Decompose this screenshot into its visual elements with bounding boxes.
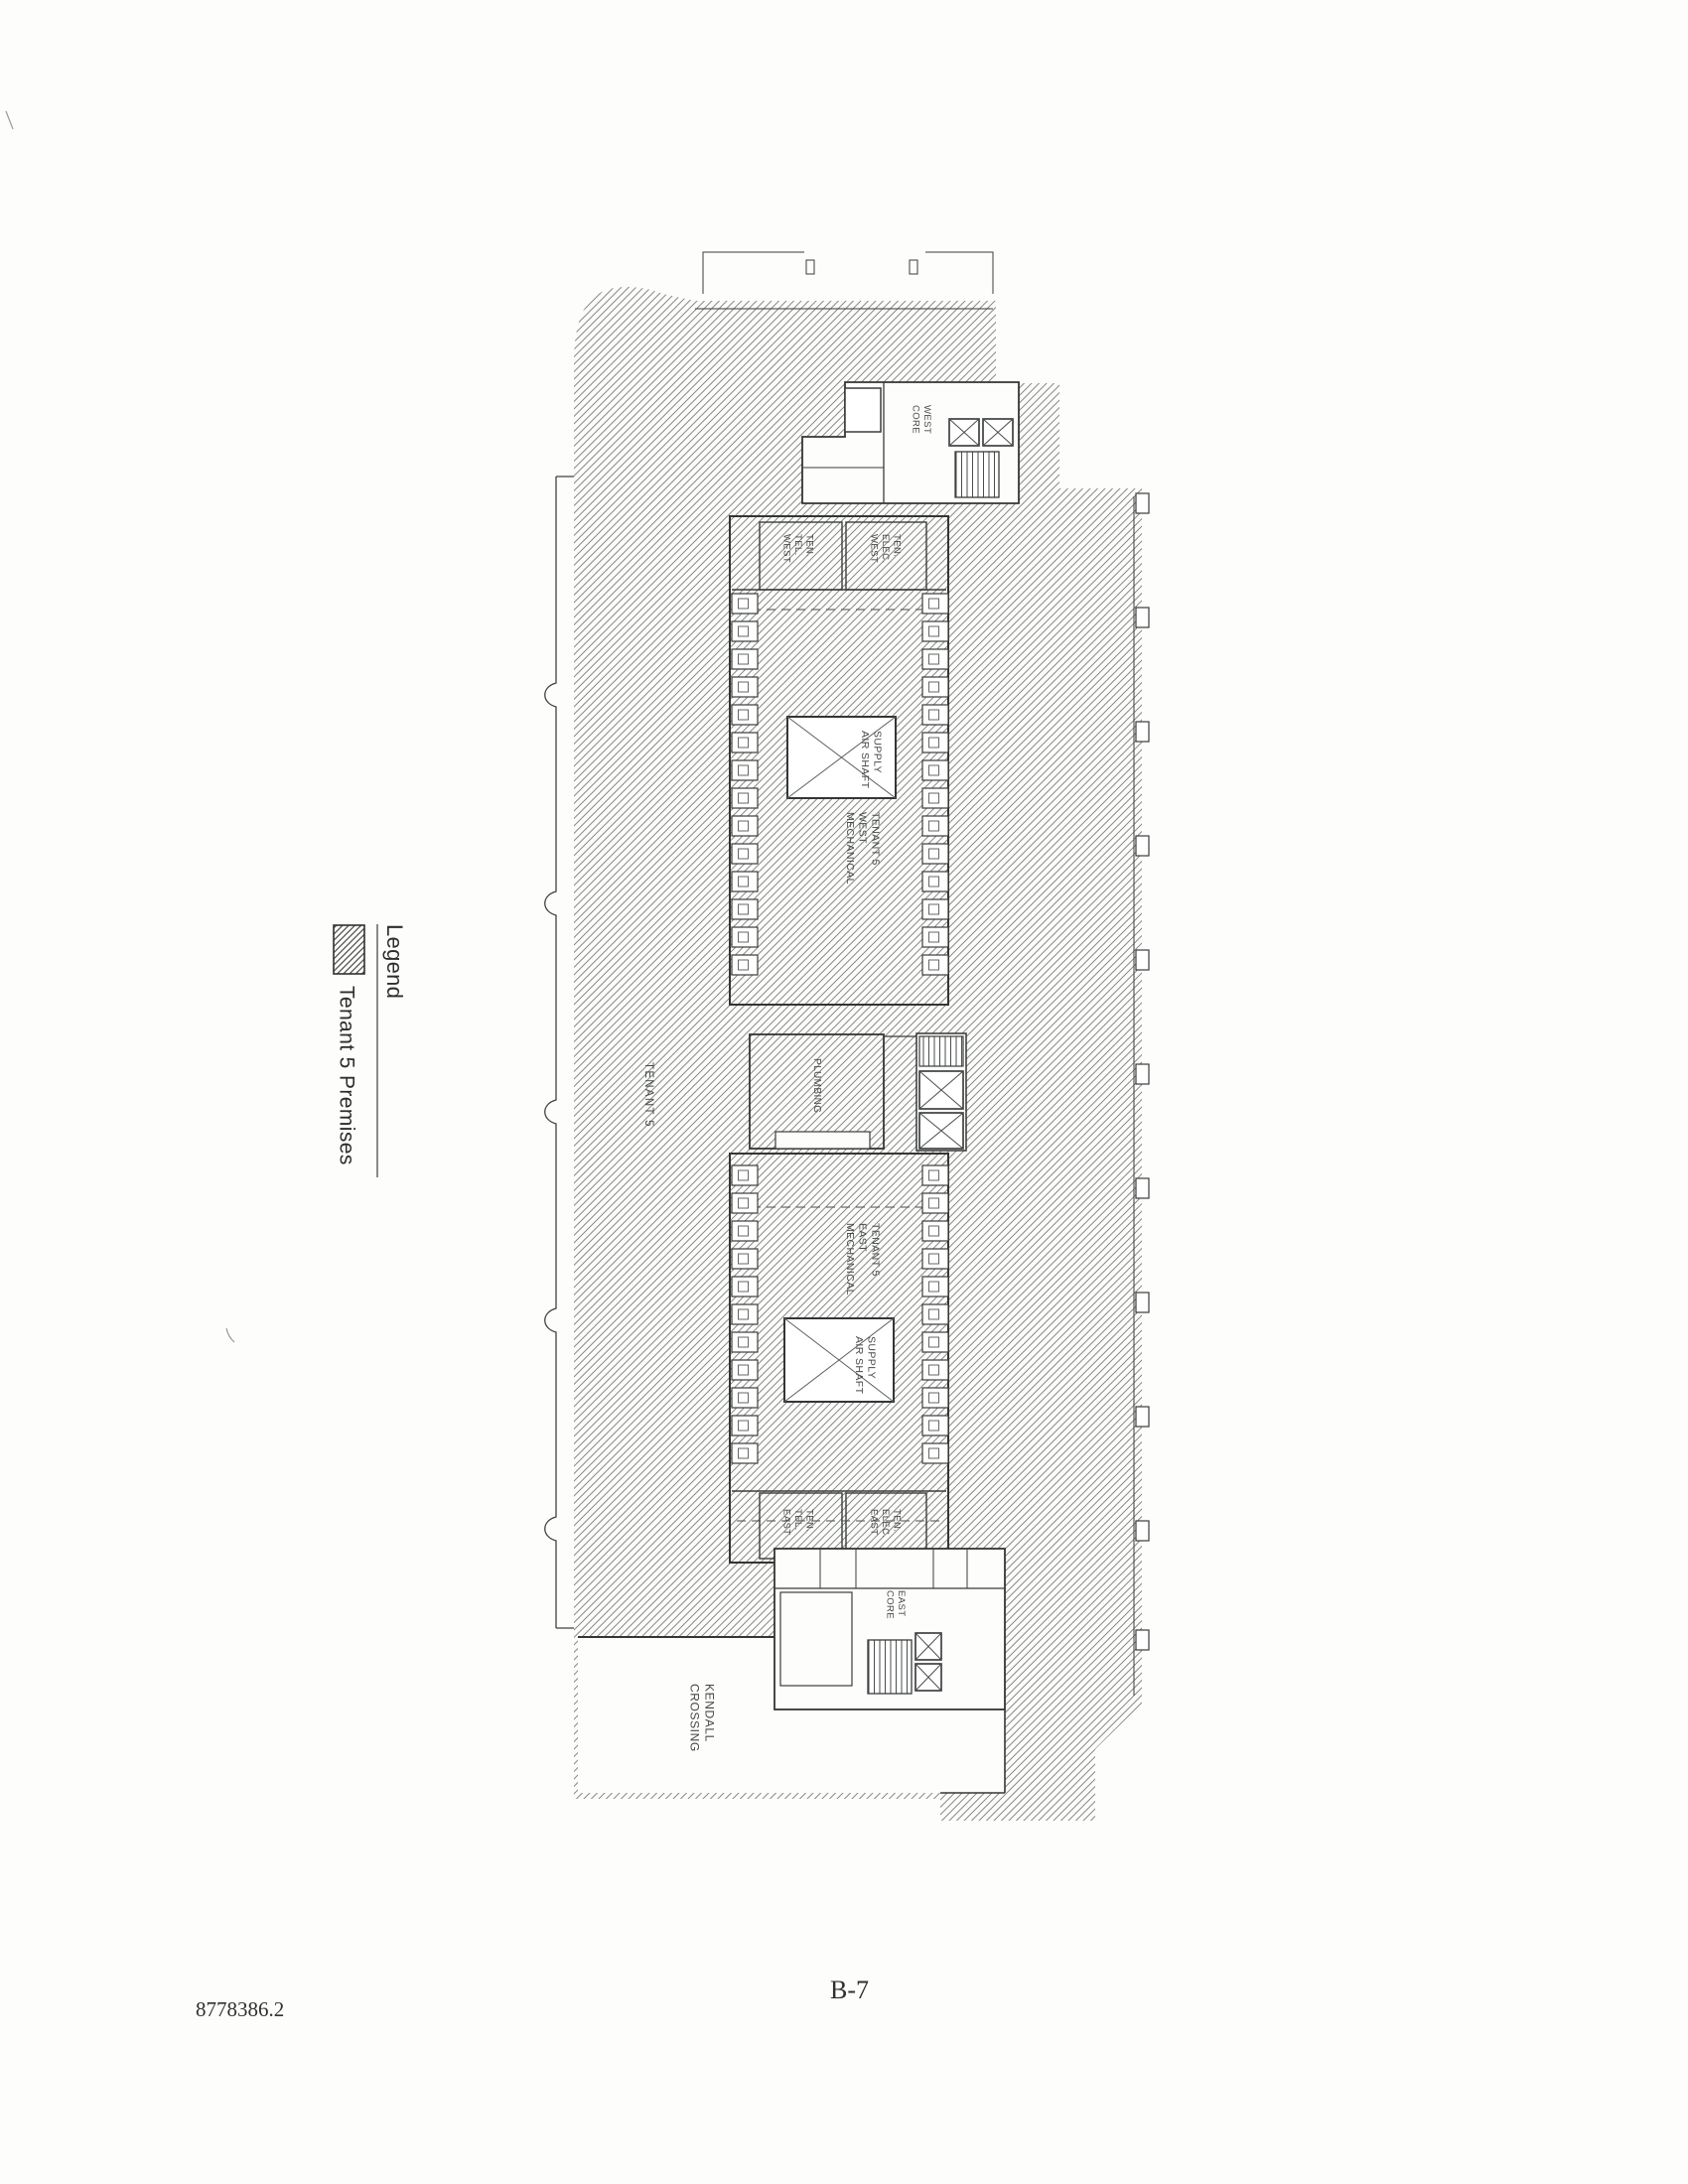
scan-artifacts bbox=[6, 111, 234, 1342]
ten-elec-east-label: TEN. ELEC. EAST bbox=[868, 1509, 903, 1538]
scanned-page: Legend Tenant 5 Premises TENANT 5 TENANT… bbox=[0, 0, 1688, 2184]
floor-plan-drawing bbox=[0, 0, 1688, 2184]
west-elevator-2 bbox=[983, 419, 1013, 446]
east-mechanical-label: TENANT 5 EAST MECHANICAL bbox=[843, 1223, 881, 1296]
west-mechanical-label: TENANT 5 WEST MECHANICAL bbox=[843, 812, 881, 885]
east-elevator-1 bbox=[915, 1633, 941, 1660]
east-core-block bbox=[774, 1549, 1005, 1709]
top-bay bbox=[695, 244, 1001, 301]
west-stair bbox=[955, 452, 999, 497]
supply-air-shaft-west-label: SUPPLY AIR SHAFT bbox=[858, 731, 884, 788]
document-ref: 8778386.2 bbox=[196, 1997, 284, 2022]
ten-tel-east-label: TEN. TEL. EAST bbox=[780, 1509, 815, 1535]
mid-stair bbox=[919, 1036, 963, 1066]
legend-item-label: Tenant 5 Premises bbox=[334, 986, 359, 1165]
plumbing-label: PLUMBING bbox=[810, 1058, 822, 1113]
west-core-shaft bbox=[845, 388, 881, 432]
east-core-label: EAST CORE bbox=[884, 1590, 907, 1619]
supply-air-shaft-east-label: SUPPLY AIR SHAFT bbox=[852, 1336, 878, 1394]
east-stair bbox=[868, 1640, 912, 1694]
page-number: B-7 bbox=[830, 1976, 869, 2005]
west-facade bbox=[545, 477, 574, 1628]
legend-title: Legend bbox=[380, 924, 407, 999]
mid-elevator-1 bbox=[919, 1071, 963, 1109]
ten-tel-west-label: TEN. TEL. WEST bbox=[780, 534, 815, 563]
ten-elec-west-label: TEN. ELEC. WEST bbox=[868, 534, 903, 563]
tenant5-area-label: TENANT 5 bbox=[641, 1062, 655, 1128]
west-core-label: WEST CORE bbox=[910, 405, 932, 434]
east-elevator-2 bbox=[915, 1664, 941, 1691]
west-elevator-1 bbox=[949, 419, 979, 446]
kendall-crossing-label: KENDALL CROSSING bbox=[687, 1684, 716, 1752]
mid-elevator-2 bbox=[919, 1113, 963, 1149]
legend-swatch bbox=[334, 925, 364, 974]
